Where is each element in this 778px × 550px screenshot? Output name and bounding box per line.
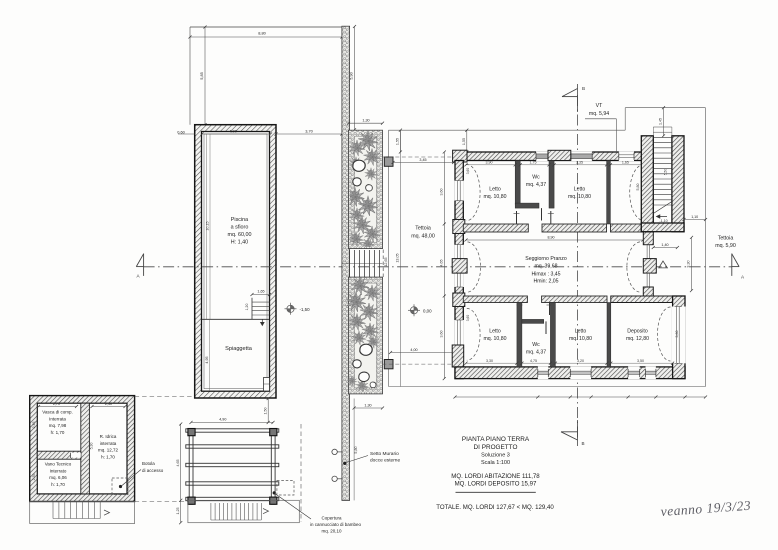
svg-text:B: B xyxy=(581,441,584,446)
svg-text:Piscina: Piscina xyxy=(231,217,248,223)
svg-text:mq. 6,06: mq. 6,06 xyxy=(49,475,67,480)
svg-text:5,85: 5,85 xyxy=(199,72,204,80)
svg-text:1,65: 1,65 xyxy=(257,290,264,294)
svg-text:10,15: 10,15 xyxy=(205,221,209,230)
svg-text:Spiaggetta: Spiaggetta xyxy=(225,346,253,352)
svg-text:5,30: 5,30 xyxy=(90,443,94,450)
svg-text:mq. 5,90: mq. 5,90 xyxy=(715,243,736,249)
svg-text:Wc: Wc xyxy=(532,342,540,348)
svg-text:mq. 7,98: mq. 7,98 xyxy=(49,423,67,428)
svg-text:8,80: 8,80 xyxy=(258,31,266,36)
svg-text:a sfioro: a sfioro xyxy=(231,225,249,231)
svg-text:3,70: 3,70 xyxy=(305,128,313,133)
svg-text:Deposito: Deposito xyxy=(627,329,648,335)
svg-text:1,45: 1,45 xyxy=(659,118,663,125)
svg-text:1,40: 1,40 xyxy=(661,243,668,247)
svg-text:Interrata: Interrata xyxy=(49,416,66,421)
svg-text:3,30: 3,30 xyxy=(486,359,493,363)
svg-text:mq. 4,37: mq. 4,37 xyxy=(526,350,546,356)
svg-text:4,65: 4,65 xyxy=(439,260,443,267)
svg-text:4,00: 4,00 xyxy=(229,128,237,133)
svg-text:3,60: 3,60 xyxy=(439,189,443,196)
svg-text:3,35: 3,35 xyxy=(576,161,583,165)
svg-text:1,55: 1,55 xyxy=(462,138,466,145)
svg-text:1,30: 1,30 xyxy=(362,119,369,123)
svg-text:h: 1,70: h: 1,70 xyxy=(51,482,65,487)
svg-text:mq. 4,37: mq. 4,37 xyxy=(526,182,546,188)
svg-text:Vasca di comp.: Vasca di comp. xyxy=(42,410,72,415)
svg-text:Scala 1:100: Scala 1:100 xyxy=(481,460,510,466)
svg-text:mq. 10,80: mq. 10,80 xyxy=(483,194,506,200)
svg-text:Copertura: Copertura xyxy=(321,516,342,521)
svg-text:Letto: Letto xyxy=(489,329,501,335)
svg-text:mq. 60,00: mq. 60,00 xyxy=(228,232,252,238)
svg-text:3,20: 3,20 xyxy=(577,359,584,363)
svg-text:h: 1,70: h: 1,70 xyxy=(51,430,65,435)
svg-text:Wc: Wc xyxy=(532,175,540,181)
svg-text:mq. 39,68: mq. 39,68 xyxy=(534,264,557,270)
svg-text:Vano Tecnico: Vano Tecnico xyxy=(45,462,72,467)
svg-text:1,30: 1,30 xyxy=(364,403,371,407)
svg-text:TOTALE. MQ. LORDI 127,67 < M: TOTALE. MQ. LORDI 127,67 < MQ. 129,40 xyxy=(436,504,554,511)
svg-text:5,80: 5,80 xyxy=(636,184,640,191)
svg-text:4,90: 4,90 xyxy=(219,418,226,422)
svg-text:Seggiorno Pranzo: Seggiorno Pranzo xyxy=(525,256,567,262)
svg-text:1,55: 1,55 xyxy=(396,138,400,145)
svg-text:2,45: 2,45 xyxy=(32,422,36,429)
svg-text:interrata: interrata xyxy=(100,441,117,446)
svg-text:in cannucciato di bambeo: in cannucciato di bambeo xyxy=(310,522,362,527)
svg-text:-1,10: -1,10 xyxy=(659,219,667,223)
svg-text:2,40: 2,40 xyxy=(105,402,112,406)
svg-text:mq. 10,80: mq. 10,80 xyxy=(569,336,592,342)
svg-text:1,50: 1,50 xyxy=(263,408,267,415)
svg-text:5,50: 5,50 xyxy=(664,169,668,176)
svg-text:-1,50: -1,50 xyxy=(300,307,311,312)
svg-text:mq. 5,94: mq. 5,94 xyxy=(589,111,609,117)
svg-text:H: 1,40: H: 1,40 xyxy=(231,240,248,246)
svg-text:PIANTA PIANO TERRA: PIANTA PIANO TERRA xyxy=(462,436,530,443)
svg-text:Himax : 3,45: Himax : 3,45 xyxy=(531,271,560,277)
svg-text:2,70: 2,70 xyxy=(53,402,60,406)
svg-text:Letto: Letto xyxy=(574,187,586,193)
svg-text:13,05: 13,05 xyxy=(396,253,400,262)
svg-text:mq. 12,72: mq. 12,72 xyxy=(98,448,119,453)
svg-text:12,65: 12,65 xyxy=(384,257,388,266)
svg-text:DI PROGETTO: DI PROGETTO xyxy=(474,444,518,451)
svg-text:Tettoia: Tettoia xyxy=(415,226,431,232)
svg-text:3,50: 3,50 xyxy=(637,359,644,363)
svg-text:Tettoia: Tettoia xyxy=(718,236,734,242)
svg-text:Letto: Letto xyxy=(489,187,501,193)
svg-text:VT: VT xyxy=(596,103,603,109)
svg-text:mq. 10,80: mq. 10,80 xyxy=(568,194,591,200)
svg-text:R. Idrica: R. Idrica xyxy=(100,434,117,439)
svg-text:1,10: 1,10 xyxy=(691,215,698,219)
svg-text:mq. 10,80: mq. 10,80 xyxy=(483,336,506,342)
svg-text:3,60: 3,60 xyxy=(675,331,679,338)
svg-text:3,45: 3,45 xyxy=(419,158,426,162)
svg-text:3,60: 3,60 xyxy=(439,331,443,338)
svg-text:5,80: 5,80 xyxy=(354,446,358,453)
svg-text:4,00: 4,00 xyxy=(410,348,417,352)
svg-text:4,65: 4,65 xyxy=(176,460,180,467)
svg-text:Interrato: Interrato xyxy=(50,468,67,473)
svg-text:MQ. LORDI DEPOSITO 15,97: MQ. LORDI DEPOSITO 15,97 xyxy=(455,481,537,488)
svg-text:mq. 48,00: mq. 48,00 xyxy=(411,234,435,240)
svg-text:1,65: 1,65 xyxy=(622,161,629,165)
svg-text:3,90: 3,90 xyxy=(486,161,493,165)
svg-text:1,75: 1,75 xyxy=(530,161,537,165)
svg-text:Botola: Botola xyxy=(142,461,155,466)
svg-text:mq. 20,10: mq. 20,10 xyxy=(321,529,342,534)
svg-text:MQ. LORDI ABITAZIONE 111,78: MQ. LORDI ABITAZIONE 111,78 xyxy=(451,473,540,480)
svg-text:8,90: 8,90 xyxy=(548,236,555,240)
svg-text:di accesso: di accesso xyxy=(142,468,164,473)
svg-text:mq. 12,80: mq. 12,80 xyxy=(626,336,649,342)
svg-text:3,60: 3,60 xyxy=(466,315,470,322)
svg-text:Letto: Letto xyxy=(575,329,587,335)
svg-text:4,95: 4,95 xyxy=(205,356,209,363)
svg-text:4,75: 4,75 xyxy=(530,359,537,363)
svg-text:B: B xyxy=(582,86,585,91)
svg-text:3,30: 3,30 xyxy=(687,260,691,267)
svg-text:0,60: 0,60 xyxy=(177,129,185,134)
svg-text:2,35: 2,35 xyxy=(32,474,36,481)
svg-text:h: 1,70: h: 1,70 xyxy=(101,454,115,459)
svg-text:Soluzione 3: Soluzione 3 xyxy=(481,453,510,459)
svg-text:3,60: 3,60 xyxy=(466,168,470,175)
svg-text:docce esterne: docce esterne xyxy=(370,457,400,463)
svg-text:Hmin: 2,05: Hmin: 2,05 xyxy=(533,279,558,285)
svg-text:Setto Murario: Setto Murario xyxy=(370,451,399,457)
svg-text:1,20: 1,20 xyxy=(245,304,249,311)
svg-text:1,25: 1,25 xyxy=(176,508,180,515)
svg-text:0,00: 0,00 xyxy=(423,309,432,314)
